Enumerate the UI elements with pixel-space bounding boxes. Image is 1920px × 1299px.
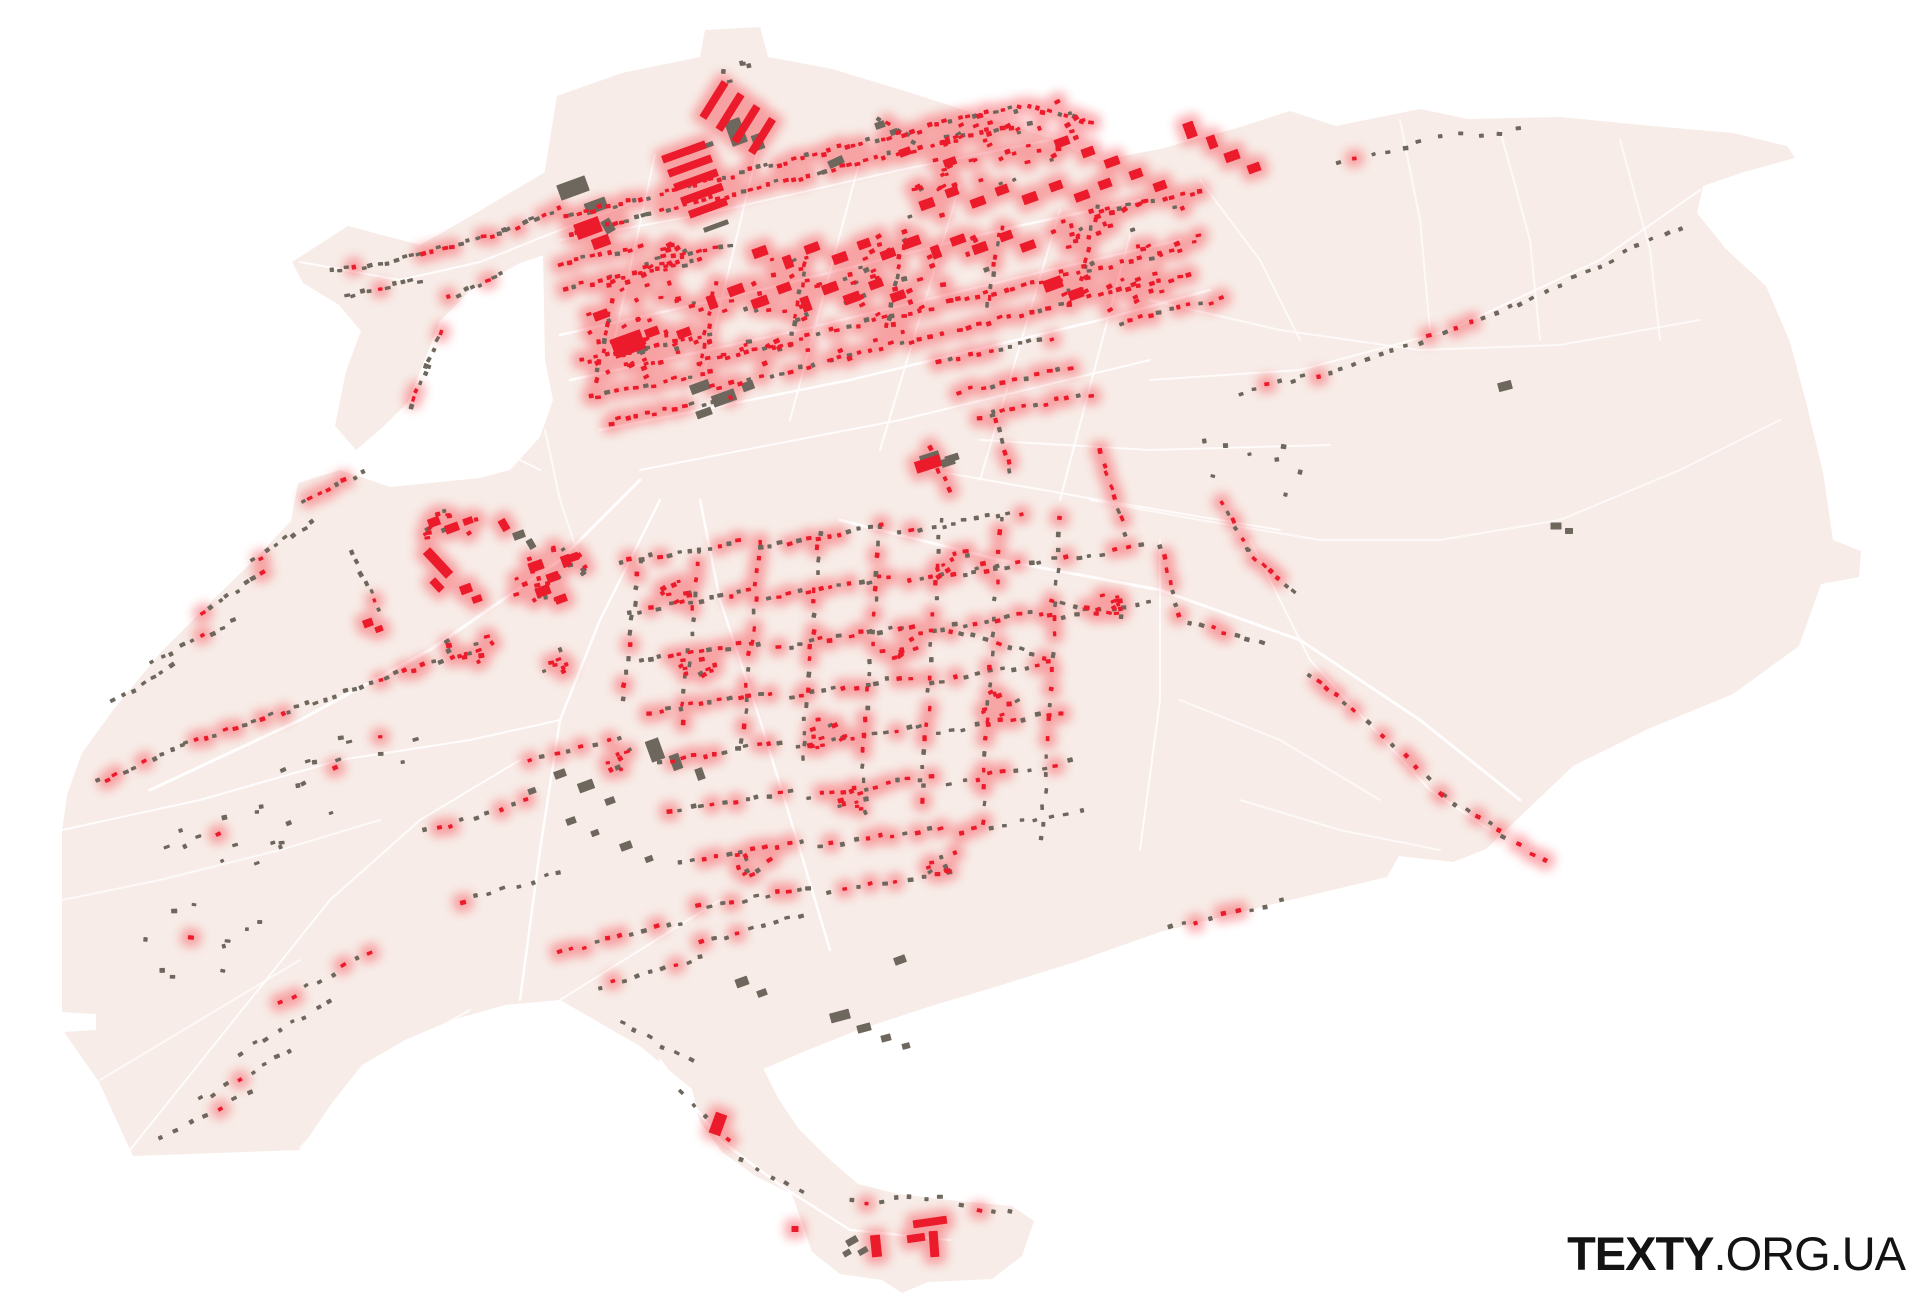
brand-regular-text: .ORG.UA — [1714, 1227, 1905, 1280]
map-stage: TEXTY.ORG.UA — [0, 0, 1920, 1299]
city-damage-map — [0, 0, 1920, 1299]
brand-watermark: TEXTY.ORG.UA — [1567, 1230, 1905, 1277]
brand-bold-text: TEXTY — [1567, 1227, 1713, 1280]
landmass-layer — [62, 27, 1861, 1293]
